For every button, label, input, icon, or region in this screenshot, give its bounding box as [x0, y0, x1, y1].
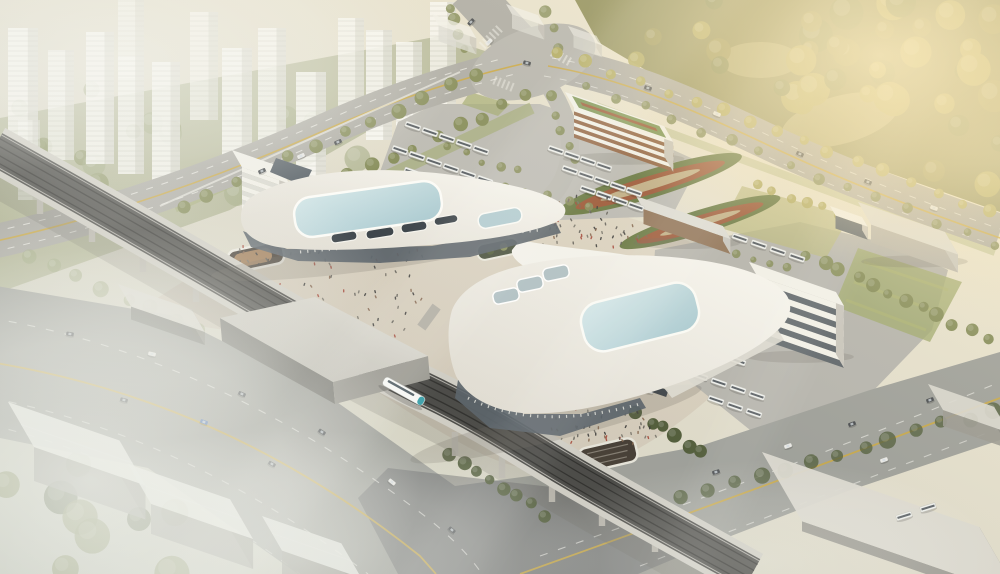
color-cast	[0, 0, 1000, 574]
render-canvas: Aerial architectural rendering of an int…	[0, 0, 1000, 574]
architectural-rendering: Aerial architectural rendering of an int…	[0, 0, 1000, 574]
atmosphere-effects	[0, 0, 1000, 574]
